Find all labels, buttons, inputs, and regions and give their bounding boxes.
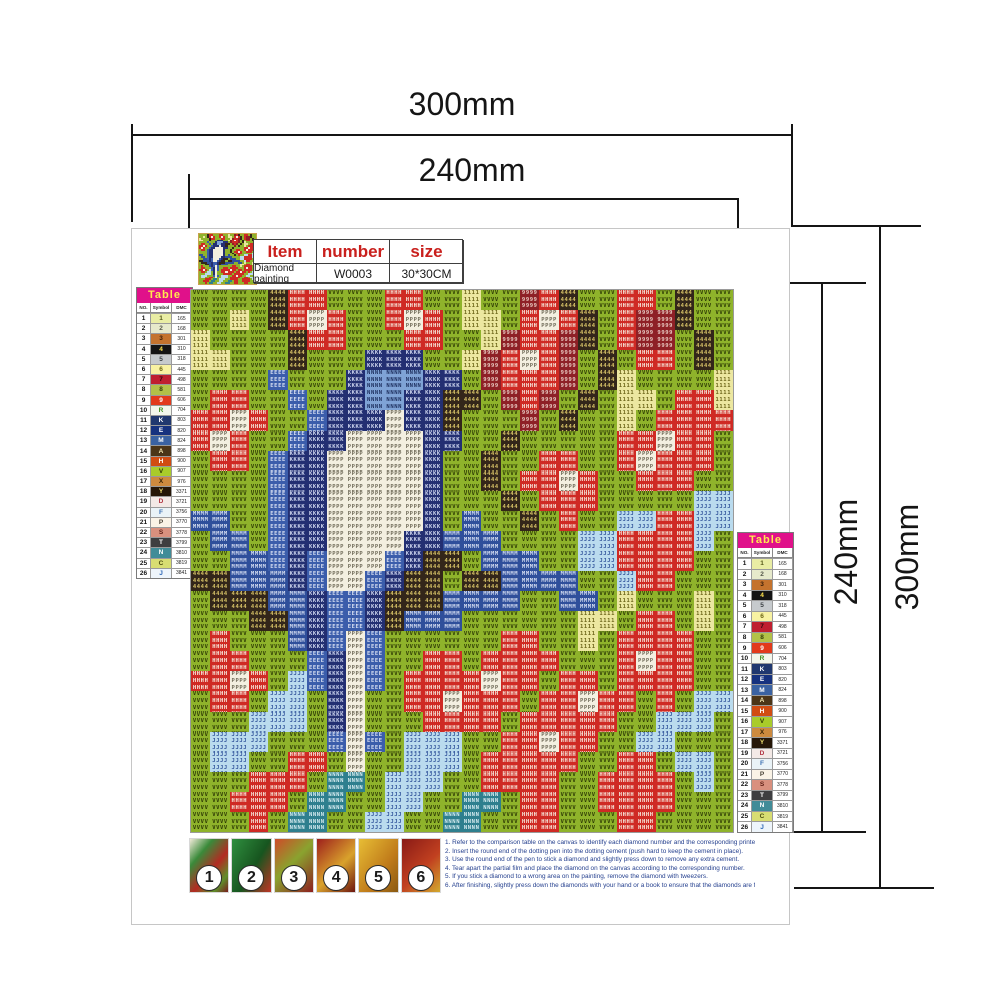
step-number: 3: [281, 865, 307, 891]
dmc-code: 3721: [172, 496, 192, 506]
dmc-code: 445: [773, 611, 793, 622]
row-number: 19: [738, 748, 752, 759]
row-number: 12: [137, 425, 151, 435]
row-number: 22: [137, 527, 151, 537]
color-table-title: Table: [137, 288, 192, 303]
dmc-code: 3371: [773, 737, 793, 748]
dimension-outer-width-line: [132, 134, 792, 136]
symbol-chip: H: [752, 705, 773, 716]
row-number: 24: [137, 547, 151, 557]
symbol-chip: N: [151, 547, 172, 557]
color-table-row: 88581: [738, 632, 793, 643]
symbol-chip: F: [752, 758, 773, 769]
dmc-code: 3819: [773, 811, 793, 822]
dmc-code: 900: [172, 456, 192, 466]
diamond-canvas: VVVVVVVVVVVVVVVVVVVVVVVVVVVVVVVVVVVVVVVV…: [190, 289, 734, 833]
row-number: 15: [738, 705, 752, 716]
color-table-row: 20F3756: [137, 507, 192, 517]
symbol-chip: 6: [752, 611, 773, 622]
symbol-chip: V: [752, 716, 773, 727]
row-number: 16: [137, 466, 151, 476]
symbol-chip: T: [151, 537, 172, 547]
dmc-code: 606: [773, 642, 793, 653]
instruction-line: 6. After finishing, slightly press down …: [445, 882, 755, 891]
color-table-row: 16V907: [137, 466, 192, 476]
color-table-row: 11165: [738, 558, 793, 569]
step-number: 6: [408, 865, 434, 891]
row-number: 16: [738, 716, 752, 727]
symbol-chip: T: [752, 790, 773, 801]
color-table-row: 99606: [137, 395, 192, 405]
dmc-code: 498: [773, 621, 793, 632]
symbol-chip: R: [752, 653, 773, 664]
number-header: number: [317, 240, 390, 264]
symbol-chip: 7: [752, 621, 773, 632]
row-number: 25: [738, 811, 752, 822]
color-table-row: 23T3799: [738, 790, 793, 801]
color-table-row: 77498: [137, 374, 192, 384]
dmc-code: 907: [773, 716, 793, 727]
row-number: 9: [738, 642, 752, 653]
symbol-chip: Y: [752, 737, 773, 748]
symbol-chip: E: [151, 425, 172, 435]
step-number: 4: [323, 865, 349, 891]
dmc-code: 704: [773, 653, 793, 664]
symbol-chip: 9: [151, 395, 172, 405]
dmc-code: 3799: [773, 790, 793, 801]
row-number: 11: [137, 415, 151, 425]
row-number: 21: [738, 769, 752, 780]
color-table-row: 12E820: [738, 674, 793, 685]
row-number: 10: [137, 405, 151, 415]
dmc-code: 803: [172, 415, 192, 425]
dmc-code: 581: [773, 632, 793, 643]
color-table-row: 10R704: [738, 653, 793, 664]
row-number: 13: [137, 435, 151, 445]
step-thumbnail-3: 3: [274, 838, 314, 893]
dmc-code: 803: [773, 663, 793, 674]
dmc-code: 824: [172, 435, 192, 445]
color-table-rows: 1116522168333014431055318664457749888581…: [738, 558, 793, 832]
color-table-row: 17X976: [738, 727, 793, 738]
color-table-row: 66445: [738, 611, 793, 622]
symbol-chip: 7: [151, 374, 172, 384]
row-number: 8: [738, 632, 752, 643]
step-thumbnail-4: 4: [316, 838, 356, 893]
dmc-code: 581: [172, 384, 192, 394]
dimension-inner-width-line: [188, 198, 738, 200]
dmc-code: 824: [773, 684, 793, 695]
step-number: 2: [238, 865, 264, 891]
color-table-row: 55318: [738, 600, 793, 611]
color-table-right: Table NO. Symbol DMC 1116522168333014431…: [737, 532, 794, 833]
instruction-line: 1. Refer to the comparison table on the …: [445, 839, 755, 848]
symbol-chip: S: [151, 527, 172, 537]
symbol-chip: D: [752, 748, 773, 759]
symbol-chip: 4: [151, 344, 172, 354]
color-table-row: 44310: [738, 590, 793, 601]
symbol-chip: H: [151, 456, 172, 466]
dmc-code: 310: [773, 590, 793, 601]
symbol-chip: X: [151, 476, 172, 486]
step-thumbnail-1: 1: [189, 838, 229, 893]
dimension-inner-height-label: 240mm: [828, 497, 862, 607]
color-table-row: 19D3721: [738, 748, 793, 759]
row-number: 9: [137, 395, 151, 405]
dmc-code: 318: [773, 600, 793, 611]
color-table-left: Table NO. Symbol DMC 1116522168333014431…: [136, 287, 193, 579]
dmc-code: 898: [172, 445, 192, 455]
symbol-chip: 9: [752, 642, 773, 653]
row-number: 23: [137, 537, 151, 547]
symbol-chip: 2: [752, 569, 773, 580]
color-table-row: 22S3778: [738, 779, 793, 790]
dimension-outer-width-label: 300mm: [362, 86, 562, 123]
dmc-code: 310: [172, 344, 192, 354]
column-dmc: DMC: [773, 548, 793, 557]
symbol-chip: J: [151, 568, 172, 578]
color-table-row: 13M824: [137, 435, 192, 445]
row-number: 17: [137, 476, 151, 486]
dmc-code: 3721: [773, 748, 793, 759]
row-number: 25: [137, 558, 151, 568]
color-table-row: 77498: [738, 621, 793, 632]
row-number: 23: [738, 790, 752, 801]
row-number: 22: [738, 779, 752, 790]
color-table-row: 24N3810: [137, 547, 192, 557]
symbol-chip: 1: [151, 313, 172, 323]
dimension-inner-width-label: 240mm: [372, 152, 572, 189]
row-number: 1: [738, 558, 752, 569]
row-number: 18: [137, 486, 151, 496]
instruction-steps: 123456: [189, 838, 441, 893]
row-number: 21: [137, 517, 151, 527]
dmc-code: 606: [172, 395, 192, 405]
color-table-row: 33301: [738, 579, 793, 590]
dmc-code: 301: [172, 333, 192, 343]
color-table-row: 16V907: [738, 716, 793, 727]
color-table-row: 12E820: [137, 425, 192, 435]
color-table-row: 17X976: [137, 476, 192, 486]
row-number: 3: [137, 333, 151, 343]
color-table-row: 26J3841: [738, 821, 793, 832]
dmc-code: 976: [773, 727, 793, 738]
step-thumbnail-5: 5: [358, 838, 398, 893]
color-table-row: 11165: [137, 313, 192, 323]
step-number: 1: [196, 865, 222, 891]
dmc-code: 976: [172, 476, 192, 486]
dimension-outer-width-tick-right: [791, 124, 793, 226]
symbol-chip: N: [752, 800, 773, 811]
dimension-outer-height-tick-bottom: [794, 887, 934, 889]
row-number: 18: [738, 737, 752, 748]
dmc-code: 498: [172, 374, 192, 384]
dmc-code: 318: [172, 354, 192, 364]
dmc-code: 3810: [172, 547, 192, 557]
color-table-columns: NO. Symbol DMC: [738, 548, 793, 558]
dimension-outer-width-tick-left: [131, 124, 133, 222]
color-table-rows: 1116522168333014431055318664457749888581…: [137, 313, 192, 578]
row-number: 13: [738, 684, 752, 695]
dmc-code: 3819: [172, 558, 192, 568]
symbol-chip: 3: [151, 333, 172, 343]
color-table-row: 22168: [738, 569, 793, 580]
dmc-code: 820: [172, 425, 192, 435]
row-number: 8: [137, 384, 151, 394]
row-number: 12: [738, 674, 752, 685]
dmc-code: 900: [773, 705, 793, 716]
row-number: 5: [738, 600, 752, 611]
symbol-chip: V: [151, 466, 172, 476]
row-number: 11: [738, 663, 752, 674]
row-number: 2: [137, 323, 151, 333]
instruction-line: 3. Use the round end of the pen to stick…: [445, 856, 755, 865]
row-number: 6: [738, 611, 752, 622]
symbol-chip: 5: [752, 600, 773, 611]
symbol-chip: 1: [752, 558, 773, 569]
column-no: NO.: [738, 548, 752, 557]
symbol-chip: S: [752, 779, 773, 790]
color-table-row: 55318: [137, 354, 192, 364]
symbol-chip: C: [151, 558, 172, 568]
dmc-code: 820: [773, 674, 793, 685]
color-table-row: 20F3756: [738, 758, 793, 769]
symbol-chip: J: [752, 821, 773, 832]
item-info-table: Item number size Diamond painting W0003 …: [253, 239, 463, 283]
step-number: 5: [365, 865, 391, 891]
color-table-row: 25C3819: [137, 558, 192, 568]
color-table-row: 22168: [137, 323, 192, 333]
dimension-outer-height-tick-top: [791, 225, 921, 227]
color-table-columns: NO. Symbol DMC: [137, 303, 192, 313]
size-value: 30*30CM: [390, 264, 464, 284]
product-sheet: 300mm 240mm 240mm 300mm Item number size…: [0, 0, 1001, 1001]
row-number: 4: [738, 590, 752, 601]
dmc-code: 3841: [172, 568, 192, 578]
row-number: 26: [137, 568, 151, 578]
row-number: 4: [137, 344, 151, 354]
symbol-chip: X: [752, 727, 773, 738]
row-number: 26: [738, 821, 752, 832]
color-table-row: 14A898: [137, 445, 192, 455]
color-table-title: Table: [738, 533, 793, 548]
dmc-code: 301: [773, 579, 793, 590]
symbol-chip: 5: [151, 354, 172, 364]
row-number: 5: [137, 354, 151, 364]
instruction-line: 2. Insert the round end of the dotting p…: [445, 848, 755, 857]
symbol-chip: R: [151, 405, 172, 415]
dmc-code: 3371: [172, 486, 192, 496]
color-table-row: 11K803: [137, 415, 192, 425]
product-card: Item number size Diamond painting W0003 …: [131, 228, 790, 925]
dmc-code: 3841: [773, 821, 793, 832]
color-table-row: 14A898: [738, 695, 793, 706]
dmc-code: 165: [773, 558, 793, 569]
color-table-row: 13M824: [738, 684, 793, 695]
symbol-chip: D: [151, 496, 172, 506]
color-table-row: 26J3841: [137, 568, 192, 578]
symbol-chip: M: [752, 684, 773, 695]
number-value: W0003: [317, 264, 390, 284]
instruction-line: 5. If you stick a diamond to a wrong are…: [445, 873, 755, 882]
row-number: 24: [738, 800, 752, 811]
dmc-code: 3756: [773, 758, 793, 769]
symbol-chip: C: [752, 811, 773, 822]
color-table-row: 66445: [137, 364, 192, 374]
row-number: 2: [738, 569, 752, 580]
row-number: 1: [137, 313, 151, 323]
color-table-row: 22S3778: [137, 527, 192, 537]
column-symbol: Symbol: [752, 548, 773, 557]
symbol-chip: A: [752, 695, 773, 706]
item-header: Item: [254, 240, 317, 264]
symbol-chip: M: [151, 435, 172, 445]
product-thumbnail: [198, 233, 257, 285]
symbol-chip: F: [151, 507, 172, 517]
row-number: 14: [738, 695, 752, 706]
dmc-code: 3770: [773, 769, 793, 780]
dmc-code: 898: [773, 695, 793, 706]
dmc-code: 704: [172, 405, 192, 415]
dmc-code: 3778: [172, 527, 192, 537]
row-number: 19: [137, 496, 151, 506]
symbol-chip: K: [752, 663, 773, 674]
color-table-row: 33301: [137, 333, 192, 343]
dmc-code: 165: [172, 313, 192, 323]
dmc-code: 3778: [773, 779, 793, 790]
color-table-row: 15H900: [738, 705, 793, 716]
color-table-row: 21P3770: [738, 769, 793, 780]
dmc-code: 445: [172, 364, 192, 374]
color-table-row: 88581: [137, 384, 192, 394]
instruction-line: 4. Tear apart the partial film and place…: [445, 865, 755, 874]
instruction-text: 1. Refer to the comparison table on the …: [445, 839, 755, 891]
size-header: size: [390, 240, 464, 264]
dmc-code: 907: [172, 466, 192, 476]
row-number: 3: [738, 579, 752, 590]
dimension-outer-height-label: 300mm: [889, 502, 923, 612]
dmc-code: 3770: [172, 517, 192, 527]
symbol-chip: 6: [151, 364, 172, 374]
column-no: NO.: [137, 303, 151, 312]
color-table-row: 10R704: [137, 405, 192, 415]
color-table-row: 25C3819: [738, 811, 793, 822]
color-table-row: 19D3721: [137, 496, 192, 506]
symbol-chip: P: [752, 769, 773, 780]
color-table-row: 18Y3371: [738, 737, 793, 748]
symbol-chip: E: [752, 674, 773, 685]
row-number: 7: [137, 374, 151, 384]
color-table-row: 21P3770: [137, 517, 192, 527]
color-table-row: 24N3810: [738, 800, 793, 811]
row-number: 10: [738, 653, 752, 664]
dimension-outer-height-line: [879, 225, 881, 889]
row-number: 7: [738, 621, 752, 632]
item-value: Diamond painting: [254, 264, 317, 284]
dmc-code: 168: [773, 569, 793, 580]
symbol-chip: K: [151, 415, 172, 425]
dmc-code: 3810: [773, 800, 793, 811]
symbol-chip: 2: [151, 323, 172, 333]
dmc-code: 3799: [172, 537, 192, 547]
symbol-chip: 8: [151, 384, 172, 394]
color-table-row: 15H900: [137, 456, 192, 466]
column-dmc: DMC: [172, 303, 192, 312]
dimension-inner-height-line: [821, 282, 823, 832]
color-table-row: 11K803: [738, 663, 793, 674]
row-number: 17: [738, 727, 752, 738]
row-number: 14: [137, 445, 151, 455]
dmc-code: 3756: [172, 507, 192, 517]
color-table-row: 44310: [137, 344, 192, 354]
row-number: 20: [738, 758, 752, 769]
symbol-chip: P: [151, 517, 172, 527]
symbol-chip: 8: [752, 632, 773, 643]
color-table-row: 99606: [738, 642, 793, 653]
symbol-chip: 3: [752, 579, 773, 590]
color-table-row: 23T3799: [137, 537, 192, 547]
row-number: 20: [137, 507, 151, 517]
symbol-chip: A: [151, 445, 172, 455]
color-table-row: 18Y3371: [137, 486, 192, 496]
row-number: 6: [137, 364, 151, 374]
symbol-chip: Y: [151, 486, 172, 496]
dmc-code: 168: [172, 323, 192, 333]
column-symbol: Symbol: [151, 303, 172, 312]
step-thumbnail-2: 2: [231, 838, 271, 893]
symbol-chip: 4: [752, 590, 773, 601]
row-number: 15: [137, 456, 151, 466]
step-thumbnail-6: 6: [401, 838, 441, 893]
